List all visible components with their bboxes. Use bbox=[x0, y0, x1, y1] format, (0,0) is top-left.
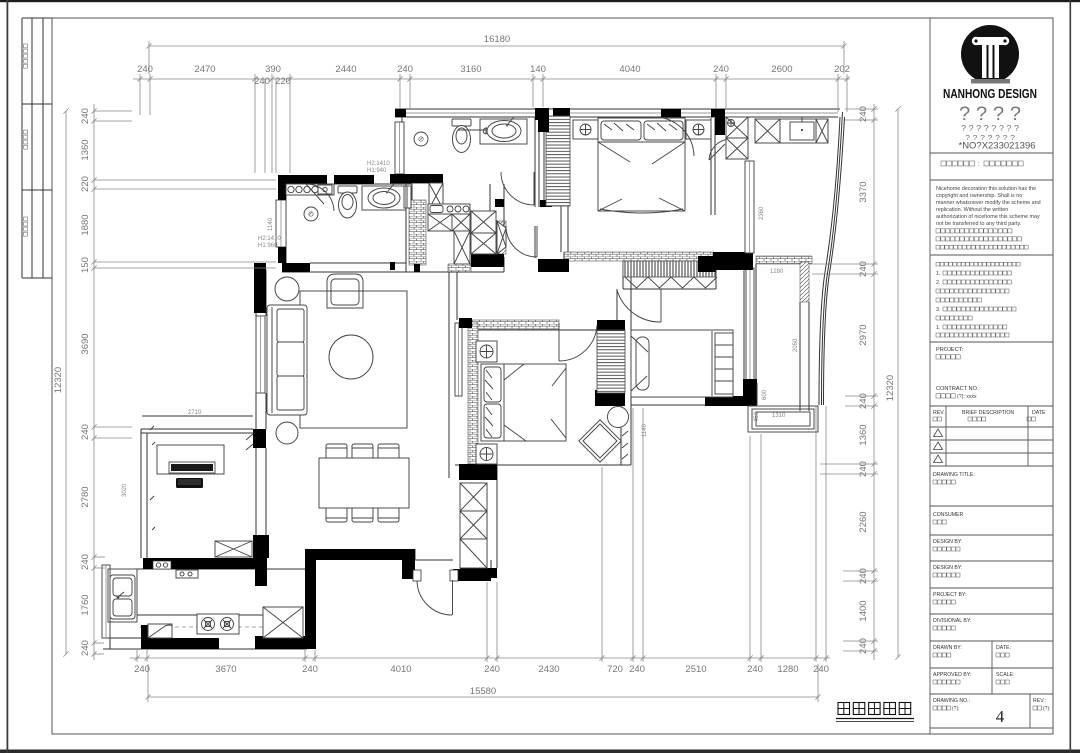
svg-text:copyright and ownership. Shall: copyright and ownership. Shall is no bbox=[936, 193, 1022, 199]
svg-text:DRAWN BY:: DRAWN BY: bbox=[933, 645, 962, 651]
svg-text:4040: 4040 bbox=[619, 64, 640, 75]
svg-text:REV.:: REV.: bbox=[1033, 698, 1046, 704]
svg-text:1280: 1280 bbox=[770, 269, 784, 275]
svg-text:1.: 1. bbox=[936, 325, 941, 331]
svg-text:DIVISIONAL BY:: DIVISIONAL BY: bbox=[933, 618, 971, 624]
svg-text:240: 240 bbox=[80, 108, 91, 124]
svg-text:H2:1410: H2:1410 bbox=[367, 161, 390, 167]
svg-text:DESIGN BY:: DESIGN BY: bbox=[933, 565, 962, 571]
svg-text:2470: 2470 bbox=[194, 64, 215, 75]
svg-text:450: 450 bbox=[754, 411, 760, 422]
svg-text:3690: 3690 bbox=[80, 333, 91, 354]
svg-text:240: 240 bbox=[858, 393, 869, 409]
svg-text:2360: 2360 bbox=[759, 206, 765, 220]
svg-text:DRAWING NO.:: DRAWING NO.: bbox=[933, 698, 970, 704]
svg-text:*NO?X233021396: *NO?X233021396 bbox=[959, 141, 1036, 152]
svg-text:4010: 4010 bbox=[390, 664, 411, 675]
svg-text:authorization of nicehome this: authorization of nicehome this scheme ma… bbox=[936, 214, 1040, 220]
svg-text:240: 240 bbox=[858, 106, 869, 122]
svg-text:240: 240 bbox=[397, 64, 413, 75]
svg-text:2.: 2. bbox=[936, 280, 941, 286]
svg-text:1140: 1140 bbox=[268, 217, 274, 231]
svg-text:DRAWING TITLE:: DRAWING TITLE: bbox=[933, 472, 975, 478]
svg-text:15580: 15580 bbox=[470, 686, 496, 697]
svg-text:2430: 2430 bbox=[538, 664, 559, 675]
svg-text:240: 240 bbox=[484, 664, 500, 675]
svg-text:2970: 2970 bbox=[858, 324, 869, 345]
svg-text:12320: 12320 bbox=[53, 367, 64, 393]
svg-text:(?): xxxx: (?): xxxx bbox=[957, 394, 977, 400]
svg-text:240: 240 bbox=[858, 461, 869, 477]
svg-text:240: 240 bbox=[254, 76, 270, 87]
svg-text:3160: 3160 bbox=[460, 64, 481, 75]
svg-text:PROJECT:: PROJECT: bbox=[936, 347, 963, 353]
svg-text:140: 140 bbox=[530, 64, 546, 75]
svg-text:202: 202 bbox=[834, 64, 850, 75]
svg-text:1310: 1310 bbox=[772, 413, 786, 419]
svg-text:1.: 1. bbox=[936, 271, 941, 277]
svg-text:240: 240 bbox=[858, 261, 869, 277]
svg-text:2050: 2050 bbox=[793, 338, 799, 352]
svg-text:240: 240 bbox=[629, 664, 645, 675]
svg-text:220: 220 bbox=[80, 176, 91, 192]
svg-text:2260: 2260 bbox=[858, 511, 869, 532]
svg-text:DATE: DATE bbox=[1032, 410, 1046, 416]
svg-text:BRIEF DESCRIPTION: BRIEF DESCRIPTION bbox=[962, 410, 1014, 416]
svg-text:? ? ? ?: ? ? ? ? bbox=[959, 104, 1021, 125]
svg-text:240: 240 bbox=[858, 638, 869, 654]
svg-text:12320: 12320 bbox=[885, 375, 896, 401]
svg-text:manner whatsoever modify the s: manner whatsoever modify the scheme and bbox=[936, 200, 1041, 206]
svg-text:240: 240 bbox=[302, 664, 318, 675]
svg-text:240: 240 bbox=[137, 64, 153, 75]
svg-text:3370: 3370 bbox=[858, 181, 869, 202]
svg-text:240: 240 bbox=[747, 664, 763, 675]
svg-text:NANHONG DESIGN: NANHONG DESIGN bbox=[943, 87, 1037, 101]
svg-text:SCALE:: SCALE: bbox=[996, 672, 1014, 678]
svg-text:H1:960: H1:960 bbox=[258, 243, 278, 249]
svg-text:DESIGN BY:: DESIGN BY: bbox=[933, 539, 962, 545]
svg-text:3670: 3670 bbox=[215, 664, 236, 675]
svg-text:(?):: (?): bbox=[952, 706, 960, 712]
svg-text:DATE:: DATE: bbox=[996, 645, 1011, 651]
svg-text:16180: 16180 bbox=[484, 34, 510, 45]
svg-text:240: 240 bbox=[713, 64, 729, 75]
svg-text:REV.: REV. bbox=[933, 410, 945, 416]
svg-text:240: 240 bbox=[813, 664, 829, 675]
svg-text:1760: 1760 bbox=[80, 594, 91, 615]
svg-text:1880: 1880 bbox=[80, 214, 91, 235]
svg-text:H1:940: H1:940 bbox=[367, 168, 387, 174]
svg-text:replication. Without the writt: replication. Without the written bbox=[936, 207, 1008, 213]
svg-text:4: 4 bbox=[996, 707, 1005, 726]
svg-text:1360: 1360 bbox=[858, 424, 869, 445]
svg-text:240: 240 bbox=[858, 568, 869, 584]
svg-text:PROJECT BY:: PROJECT BY: bbox=[933, 592, 967, 598]
svg-text:2510: 2510 bbox=[685, 664, 706, 675]
svg-text:240: 240 bbox=[80, 640, 91, 656]
svg-text:1400: 1400 bbox=[858, 600, 869, 621]
svg-text:3.: 3. bbox=[936, 307, 941, 313]
svg-text:? ? ? ? ? ? ? ?: ? ? ? ? ? ? ? ? bbox=[961, 123, 1019, 133]
svg-text:390: 390 bbox=[265, 64, 281, 75]
svg-text:CONTRACT NO.:: CONTRACT NO.: bbox=[936, 386, 980, 392]
svg-text:240: 240 bbox=[134, 664, 150, 675]
svg-text:3020: 3020 bbox=[122, 483, 128, 497]
svg-text:1360: 1360 bbox=[80, 139, 91, 160]
svg-text:H2:1410: H2:1410 bbox=[258, 236, 281, 242]
svg-text:2440: 2440 bbox=[335, 64, 356, 75]
svg-text:240: 240 bbox=[80, 424, 91, 440]
svg-text:2780: 2780 bbox=[80, 486, 91, 507]
svg-text:(?):: (?): bbox=[1043, 706, 1051, 712]
svg-text:220: 220 bbox=[275, 76, 291, 87]
svg-text:600: 600 bbox=[762, 389, 768, 400]
svg-text:150: 150 bbox=[80, 257, 91, 273]
svg-text:720: 720 bbox=[607, 664, 623, 675]
svg-text:240: 240 bbox=[80, 554, 91, 570]
svg-text:2600: 2600 bbox=[771, 64, 792, 75]
svg-text:not be transferred to any thir: not be transferred to any third party. bbox=[936, 221, 1021, 227]
svg-text:2710: 2710 bbox=[188, 410, 202, 416]
svg-text:1280: 1280 bbox=[777, 664, 798, 675]
svg-text:CONSUMER: CONSUMER bbox=[933, 512, 964, 518]
svg-text:Nicehome decoration this solut: Nicehome decoration this solution has th… bbox=[936, 186, 1036, 192]
svg-text::: : bbox=[978, 162, 980, 168]
svg-text:APPROVED BY:: APPROVED BY: bbox=[933, 672, 971, 678]
